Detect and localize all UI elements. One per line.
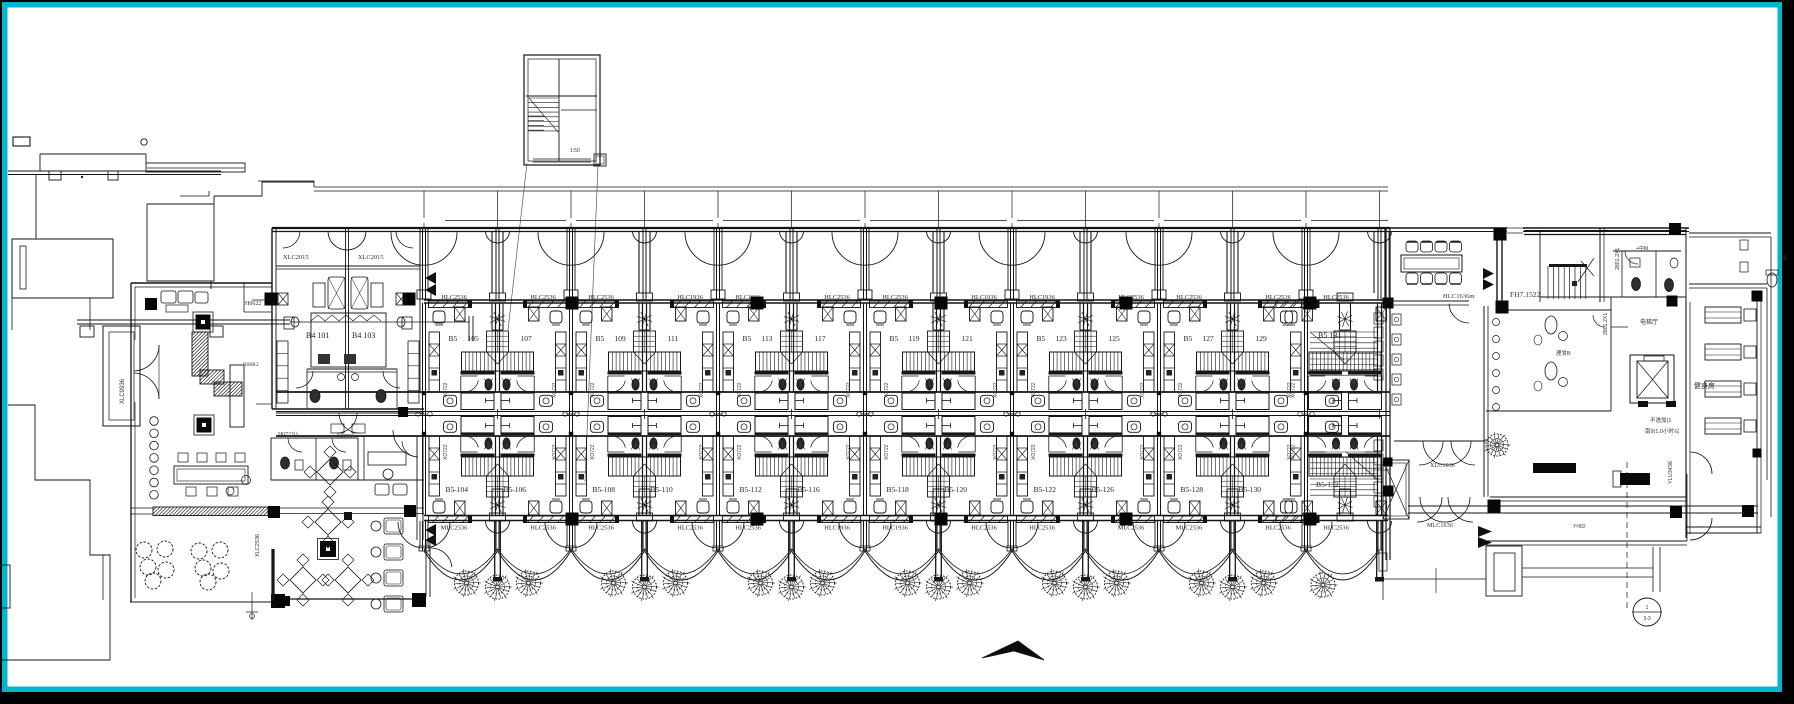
- svg-text:B4 103: B4 103: [352, 331, 375, 340]
- svg-text:B4 101: B4 101: [306, 331, 329, 340]
- svg-text:XO722: XO722: [552, 382, 558, 398]
- svg-text:B5: B5: [1037, 334, 1046, 343]
- svg-text:HLC1936: HLC1936: [677, 294, 703, 301]
- svg-text:HLC2536: HLC2536: [1176, 294, 1202, 301]
- svg-text:HLC2536: HLC2536: [441, 294, 467, 301]
- svg-text:XLC1036: XLC1036: [1430, 462, 1455, 469]
- svg-text:HLC2536: HLC2536: [530, 294, 556, 301]
- svg-text:FH7.1522: FH7.1522: [1510, 290, 1540, 299]
- svg-text:YLU3436: YLU3436: [1668, 461, 1674, 484]
- svg-text:HLC2536: HLC2536: [588, 294, 614, 301]
- svg-text:111: 111: [668, 334, 679, 343]
- svg-text:XLC9936: XLC9936: [120, 378, 126, 404]
- svg-text:H0622: H0622: [245, 301, 261, 307]
- svg-text:XO722: XO722: [1291, 444, 1297, 460]
- svg-text:XO722: XO722: [1031, 444, 1037, 460]
- svg-text:113: 113: [762, 334, 773, 343]
- svg-text:105: 105: [468, 334, 480, 343]
- svg-text:B5-120: B5-120: [945, 485, 968, 494]
- svg-text:1: 1: [1646, 605, 1649, 611]
- svg-text:107: 107: [521, 334, 533, 343]
- svg-text:123: 123: [1056, 334, 1068, 343]
- svg-text:HLC2536: HLC2536: [1029, 525, 1055, 532]
- svg-text:B5-110: B5-110: [651, 485, 673, 494]
- svg-text:B5-106: B5-106: [504, 485, 527, 494]
- svg-text:MLC2536: MLC2536: [441, 525, 468, 532]
- svg-text:MLC2536: MLC2536: [1118, 525, 1145, 532]
- svg-text:HLC2536: HLC2536: [588, 525, 614, 532]
- svg-text:HLC2536: HLC2536: [971, 525, 997, 532]
- svg-text:B5-116: B5-116: [798, 485, 820, 494]
- svg-text:HLC2536: HLC2536: [530, 525, 556, 532]
- svg-text:HLC2536: HLC2536: [1323, 525, 1349, 532]
- svg-text:XO722: XO722: [552, 444, 558, 460]
- svg-text:B5-112: B5-112: [740, 485, 762, 494]
- svg-text:B5 131: B5 131: [1318, 331, 1341, 340]
- svg-text:125: 125: [1109, 334, 1121, 343]
- svg-text:121: 121: [962, 334, 974, 343]
- svg-text:XO722: XO722: [846, 382, 852, 398]
- svg-text:HLC1936: HLC1936: [1029, 294, 1055, 301]
- svg-text:↑: ↑: [1370, 469, 1373, 475]
- svg-text:HLC2536: HLC2536: [677, 525, 703, 532]
- svg-text:XO722: XO722: [993, 382, 999, 398]
- svg-text:HLC2536: HLC2536: [735, 525, 761, 532]
- svg-text:B5: B5: [743, 334, 752, 343]
- svg-text:B5-126: B5-126: [1092, 485, 1115, 494]
- svg-text:XO722: XO722: [1140, 382, 1146, 398]
- svg-text:HLC2536: HLC2536: [882, 294, 908, 301]
- svg-text:XO722: XO722: [737, 444, 743, 460]
- svg-text:117: 117: [815, 334, 826, 343]
- svg-text:电梯厅: 电梯厅: [1640, 318, 1658, 326]
- svg-text:MLC2536: MLC2536: [1176, 525, 1203, 532]
- svg-text:理发B: 理发B: [1556, 349, 1571, 357]
- svg-text:HLC1936: HLC1936: [971, 294, 997, 301]
- svg-text:HLC1936: HLC1936: [824, 525, 850, 532]
- svg-text:MLC1636: MLC1636: [1427, 522, 1453, 529]
- svg-text:B5-118: B5-118: [887, 485, 909, 494]
- svg-text:YH82: YH82: [1573, 524, 1586, 530]
- svg-text:XLC2536: XLC2536: [255, 534, 261, 557]
- svg-text:便: 便: [1782, 255, 1787, 262]
- svg-text:XLC2015: XLC2015: [283, 254, 309, 261]
- svg-text:B5: B5: [449, 334, 458, 343]
- svg-text:南9(1.0小时以: 南9(1.0小时以: [1645, 427, 1680, 435]
- svg-text:XO722: XO722: [1291, 382, 1297, 398]
- svg-text:HLC2536: HLC2536: [824, 294, 850, 301]
- svg-text:HLC1636m: HLC1636m: [1443, 293, 1475, 300]
- svg-text:B5-128: B5-128: [1181, 485, 1204, 494]
- svg-text:129: 129: [1256, 334, 1268, 343]
- svg-text:HLC2536: HLC2536: [1265, 525, 1291, 532]
- svg-text:B06R2: B06R2: [243, 362, 259, 368]
- svg-text:XO722: XO722: [884, 444, 890, 460]
- svg-text:XO722: XO722: [443, 444, 449, 460]
- svg-text:XLC2015: XLC2015: [358, 254, 384, 261]
- svg-text:B5-104: B5-104: [446, 485, 469, 494]
- svg-text:B5-130: B5-130: [1239, 485, 1262, 494]
- svg-text:HLC2536: HLC2536: [1323, 294, 1349, 301]
- svg-text:B5: B5: [596, 334, 605, 343]
- svg-text:H0722(): H0722(): [278, 431, 298, 438]
- svg-text:119: 119: [909, 334, 920, 343]
- svg-text:M0722: M0722: [337, 434, 354, 440]
- svg-text:B5-108: B5-108: [593, 485, 616, 494]
- svg-text:HLC2536: HLC2536: [1265, 294, 1291, 301]
- svg-text:+中M: +中M: [1636, 245, 1648, 252]
- svg-text:127: 127: [1203, 334, 1215, 343]
- svg-text:XO722: XO722: [1140, 444, 1146, 460]
- svg-text:HLC1936: HLC1936: [882, 525, 908, 532]
- svg-text:XO722: XO722: [993, 444, 999, 460]
- svg-text:2801.2X1: 2801.2X1: [1615, 248, 1621, 270]
- svg-text:2801.2X1: 2801.2X1: [1603, 313, 1609, 335]
- svg-text:B5: B5: [890, 334, 899, 343]
- svg-text:健身房: 健身房: [1694, 381, 1715, 390]
- svg-text:B5: B5: [1184, 334, 1193, 343]
- svg-text:XO722: XO722: [590, 444, 596, 460]
- svg-text:XO722: XO722: [846, 444, 852, 460]
- svg-text:B5-122: B5-122: [1034, 485, 1057, 494]
- svg-text:XO722: XO722: [699, 444, 705, 460]
- svg-text:XO722: XO722: [699, 382, 705, 398]
- svg-text:3-3: 3-3: [1643, 616, 1650, 622]
- svg-text:XO722: XO722: [1178, 444, 1184, 460]
- svg-text:1:50: 1:50: [570, 148, 580, 154]
- svg-text:109: 109: [615, 334, 627, 343]
- svg-text:不遂加(1: 不遂加(1: [1650, 416, 1671, 424]
